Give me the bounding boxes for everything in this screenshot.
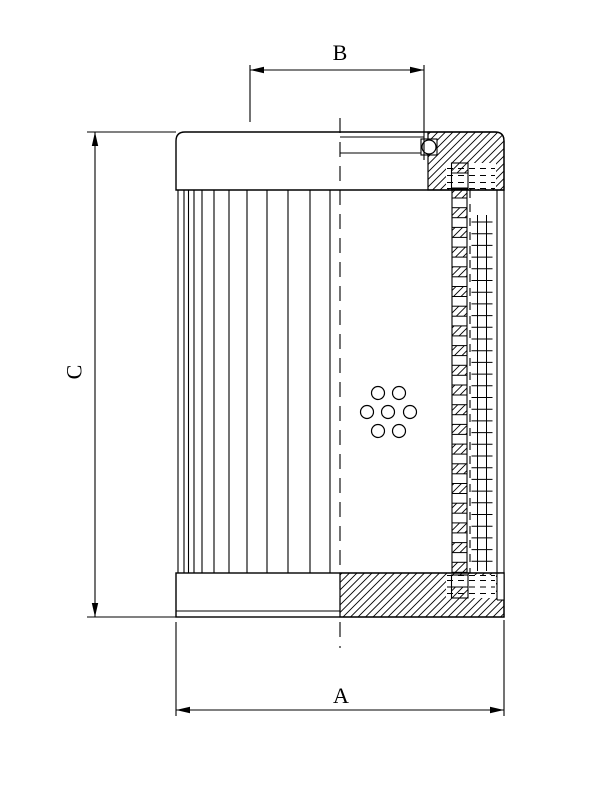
drawing-block xyxy=(452,484,467,494)
core-tube-perforation-blocks xyxy=(452,188,467,572)
shell-channel xyxy=(498,574,504,600)
drawing-block xyxy=(452,562,467,572)
core-tube-walls xyxy=(452,188,467,575)
drawing-block xyxy=(452,306,467,316)
drawing-block xyxy=(452,424,467,434)
perforation-hole xyxy=(372,425,385,438)
outer-shell-walls xyxy=(497,190,504,600)
dim-a-arrow-right xyxy=(490,707,504,713)
perforation-hole xyxy=(393,387,406,400)
core-tube-top-end-hatch xyxy=(452,163,469,173)
mesh-cross-wires xyxy=(472,222,493,561)
perforated-core-tube xyxy=(452,188,470,598)
drawing-block xyxy=(452,346,467,356)
dimension-label-b: B xyxy=(333,40,348,65)
dimension-label-c: C xyxy=(62,365,87,380)
filter-element-cross-section-drawing: B C A xyxy=(0,0,612,792)
filter-element-body xyxy=(176,118,504,648)
perforation-hole xyxy=(404,406,417,419)
dimension-c: C xyxy=(62,132,177,617)
dim-b-arrow-right xyxy=(410,67,424,73)
drawing-block xyxy=(452,227,467,237)
drawing-block xyxy=(452,326,467,336)
drawing-block xyxy=(452,365,467,375)
drawing-block xyxy=(452,208,467,218)
drawing-block xyxy=(452,267,467,277)
dim-b-arrow-left xyxy=(250,67,264,73)
top-end-cap xyxy=(176,132,504,190)
drawing-block xyxy=(452,287,467,297)
perforation-hole-pattern xyxy=(361,387,417,438)
drawing-block xyxy=(452,444,467,454)
drawing-block xyxy=(452,503,467,513)
perforation-hole xyxy=(372,387,385,400)
drawing-block xyxy=(452,405,467,415)
perforation-hole xyxy=(382,406,395,419)
dim-c-arrow-top xyxy=(92,132,98,146)
dim-c-arrow-bottom xyxy=(92,603,98,617)
wire-mesh-screen xyxy=(472,215,493,571)
drawing-block xyxy=(452,523,467,533)
perforation-hole xyxy=(393,425,406,438)
drawing-block xyxy=(452,188,467,198)
technical-drawing-page: B C A xyxy=(0,0,612,792)
perforation-hole xyxy=(361,406,374,419)
core-tube-bottom-end-hatch xyxy=(452,587,469,598)
outer-shell xyxy=(497,190,504,600)
dimension-label-a: A xyxy=(333,683,349,708)
dim-a-arrow-left xyxy=(176,707,190,713)
pleated-filter-media xyxy=(178,190,330,573)
drawing-block xyxy=(452,543,467,553)
drawing-block xyxy=(452,464,467,474)
drawing-block xyxy=(452,247,467,257)
drawing-block xyxy=(452,385,467,395)
